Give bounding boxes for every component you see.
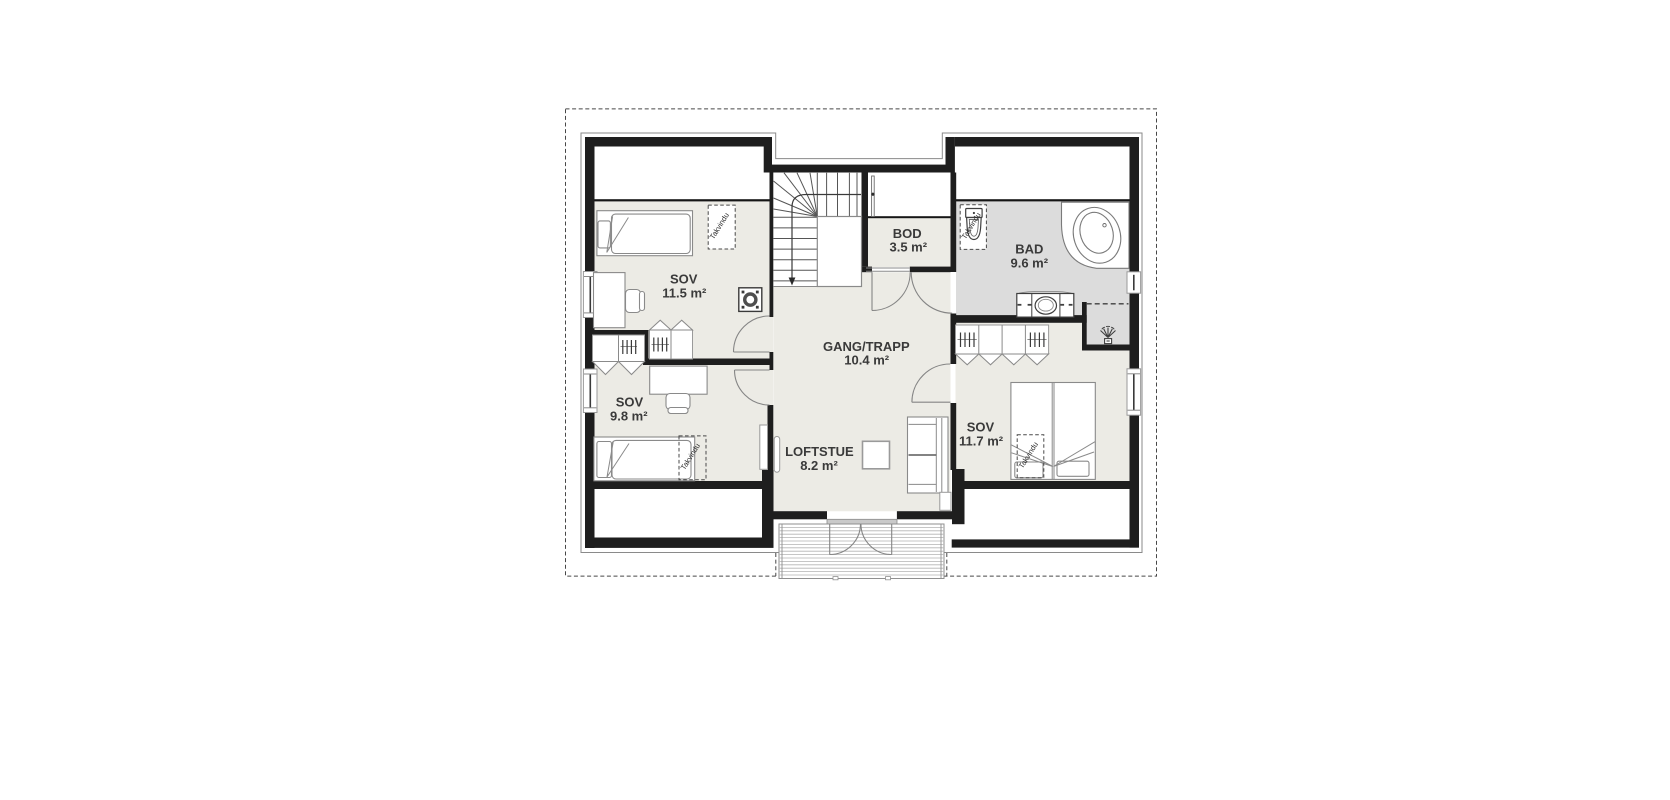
svg-text:SOV: SOV	[670, 272, 698, 287]
svg-text:9.6 m²: 9.6 m²	[1011, 256, 1049, 271]
svg-text:11.7 m²: 11.7 m²	[959, 434, 1004, 449]
svg-text:9.8 m²: 9.8 m²	[610, 408, 648, 423]
svg-text:BAD: BAD	[1015, 242, 1043, 257]
svg-text:LOFTSTUE: LOFTSTUE	[785, 444, 854, 459]
svg-text:SOV: SOV	[967, 420, 995, 435]
svg-text:GANG/TRAPP: GANG/TRAPP	[823, 339, 910, 354]
svg-text:11.5 m²: 11.5 m²	[662, 286, 707, 301]
svg-text:SOV: SOV	[616, 394, 644, 409]
svg-text:8.2 m²: 8.2 m²	[800, 458, 838, 473]
svg-text:3.5 m²: 3.5 m²	[890, 240, 928, 255]
svg-text:10.4 m²: 10.4 m²	[844, 353, 889, 368]
